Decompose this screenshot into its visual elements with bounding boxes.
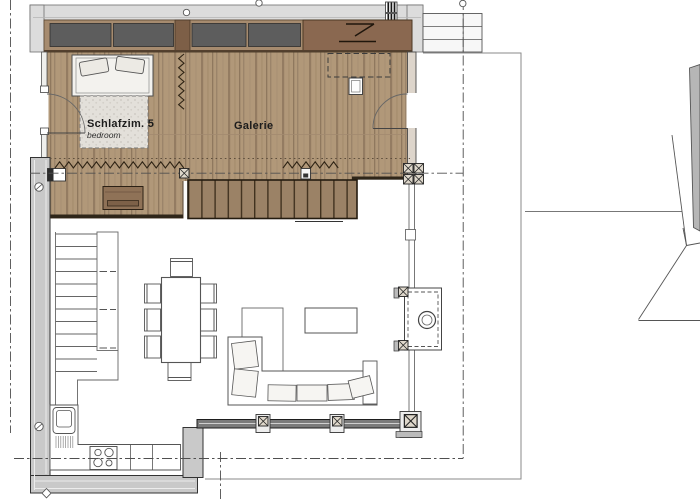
wood-stove: [394, 287, 442, 351]
window-pane: [249, 24, 301, 47]
exterior-stair: [423, 14, 482, 53]
stove-flue-icon: [419, 312, 436, 329]
dining-set: [145, 259, 217, 381]
floor-plan-canvas: Schlafzim. 5 bedroom Galerie: [0, 0, 700, 500]
lower-staircase: [56, 232, 119, 406]
window-pane: [192, 24, 246, 47]
window-pane: [114, 24, 174, 47]
wall-step: [183, 428, 203, 478]
cooktop: [90, 447, 117, 470]
veranda-post: [256, 415, 270, 433]
axis-bubble: [256, 0, 262, 6]
sofa-group: [228, 308, 377, 405]
wardrobe-panel: [303, 20, 412, 52]
floor-plan-drawing: Schlafzim. 5 bedroom Galerie: [0, 0, 700, 500]
bedroom-sublabel: bedroom: [87, 130, 121, 140]
survey-marker: [35, 183, 43, 191]
gallery-staircase: [184, 180, 358, 222]
window-mullion: [175, 20, 190, 52]
survey-marker: [35, 422, 43, 430]
adjacent-drawing-fragment: [525, 65, 700, 321]
window-band: [44, 20, 412, 52]
bottom-exterior-wall: [31, 476, 198, 494]
gallery-left-opening: [48, 169, 66, 182]
timber-post-x: [180, 169, 190, 179]
veranda-post: [330, 415, 344, 433]
gallery-label: Galerie: [234, 120, 273, 132]
dining-table: [162, 278, 201, 363]
bedroom-label: Schlafzim. 5: [87, 118, 154, 130]
left-exterior-wall: [31, 158, 51, 494]
kitchen: [50, 405, 181, 470]
axis-bubble: [460, 0, 466, 6]
post-marker: [301, 169, 311, 180]
axis-bubble: [183, 9, 189, 15]
window-pane: [50, 24, 111, 47]
veranda-corner-post: [396, 412, 422, 438]
coffee-table: [305, 308, 357, 333]
